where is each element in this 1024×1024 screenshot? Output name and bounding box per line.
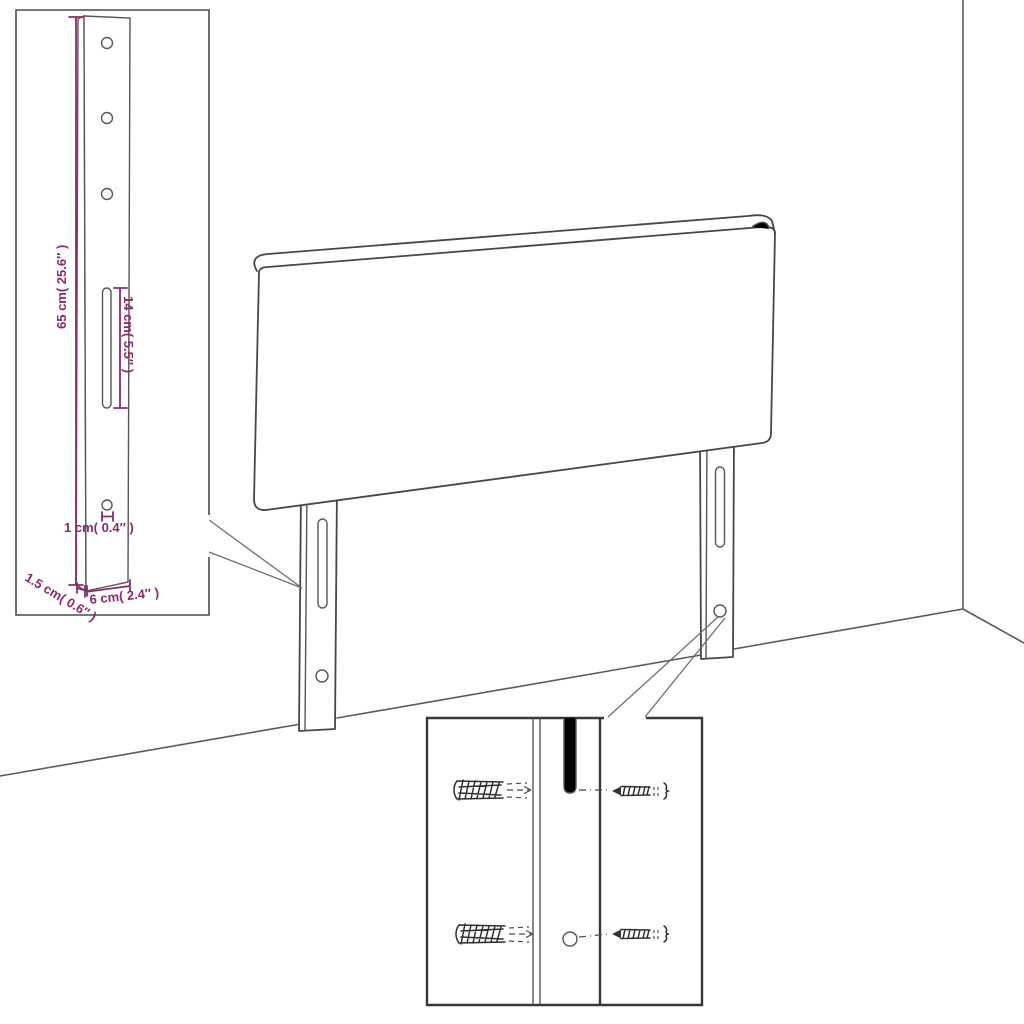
leg-hole-1 <box>102 38 113 49</box>
diagram-canvas: 65 cm( 25.6″ ) 14 cm( 5.5″ ) 1 cm( 0.4″ … <box>0 0 1024 1024</box>
floor-edge-left-a <box>0 724 301 776</box>
panel-front-face <box>254 227 775 510</box>
left-leg-hole <box>316 670 328 682</box>
headboard-panel <box>254 215 775 510</box>
headboard-right-leg <box>700 431 734 659</box>
leg-hole-3 <box>102 189 113 200</box>
inset-callout-upper <box>209 520 302 588</box>
dimension-slot-label: 14 cm( 5.5″ ) <box>121 296 136 373</box>
floor-edge-right <box>963 609 1024 643</box>
right-leg-slot <box>716 467 725 547</box>
leg-detail-inset: 65 cm( 25.6″ ) 14 cm( 5.5″ ) 1 cm( 0.4″ … <box>16 10 209 624</box>
floor-edge-left-b <box>337 655 701 718</box>
dimension-hole-label: 1 cm( 0.4″ ) <box>64 520 134 535</box>
dimension-leg-height-label: 65 cm( 25.6″ ) <box>54 245 69 329</box>
right-leg-edge-line <box>706 433 707 658</box>
mount-callout-right <box>645 618 725 717</box>
left-leg-slot <box>318 519 327 608</box>
right-leg-hole <box>714 605 726 617</box>
mounting-detail-inset <box>427 718 702 1005</box>
mount-callout-left <box>608 617 718 717</box>
headboard-left-leg <box>299 485 337 731</box>
leg-slot <box>103 288 112 408</box>
leg-hole-2 <box>102 113 113 124</box>
leg-small-hole <box>102 500 112 510</box>
mount-leg-hole <box>563 932 577 946</box>
inset-callout-lower <box>209 552 302 588</box>
headboard-assembly-diagram: 65 cm( 25.6″ ) 14 cm( 5.5″ ) 1 cm( 0.4″ … <box>0 0 1024 1024</box>
floor-edge-left-c <box>734 609 963 649</box>
mount-leg-slot <box>564 718 576 793</box>
callout-lines <box>209 520 725 717</box>
